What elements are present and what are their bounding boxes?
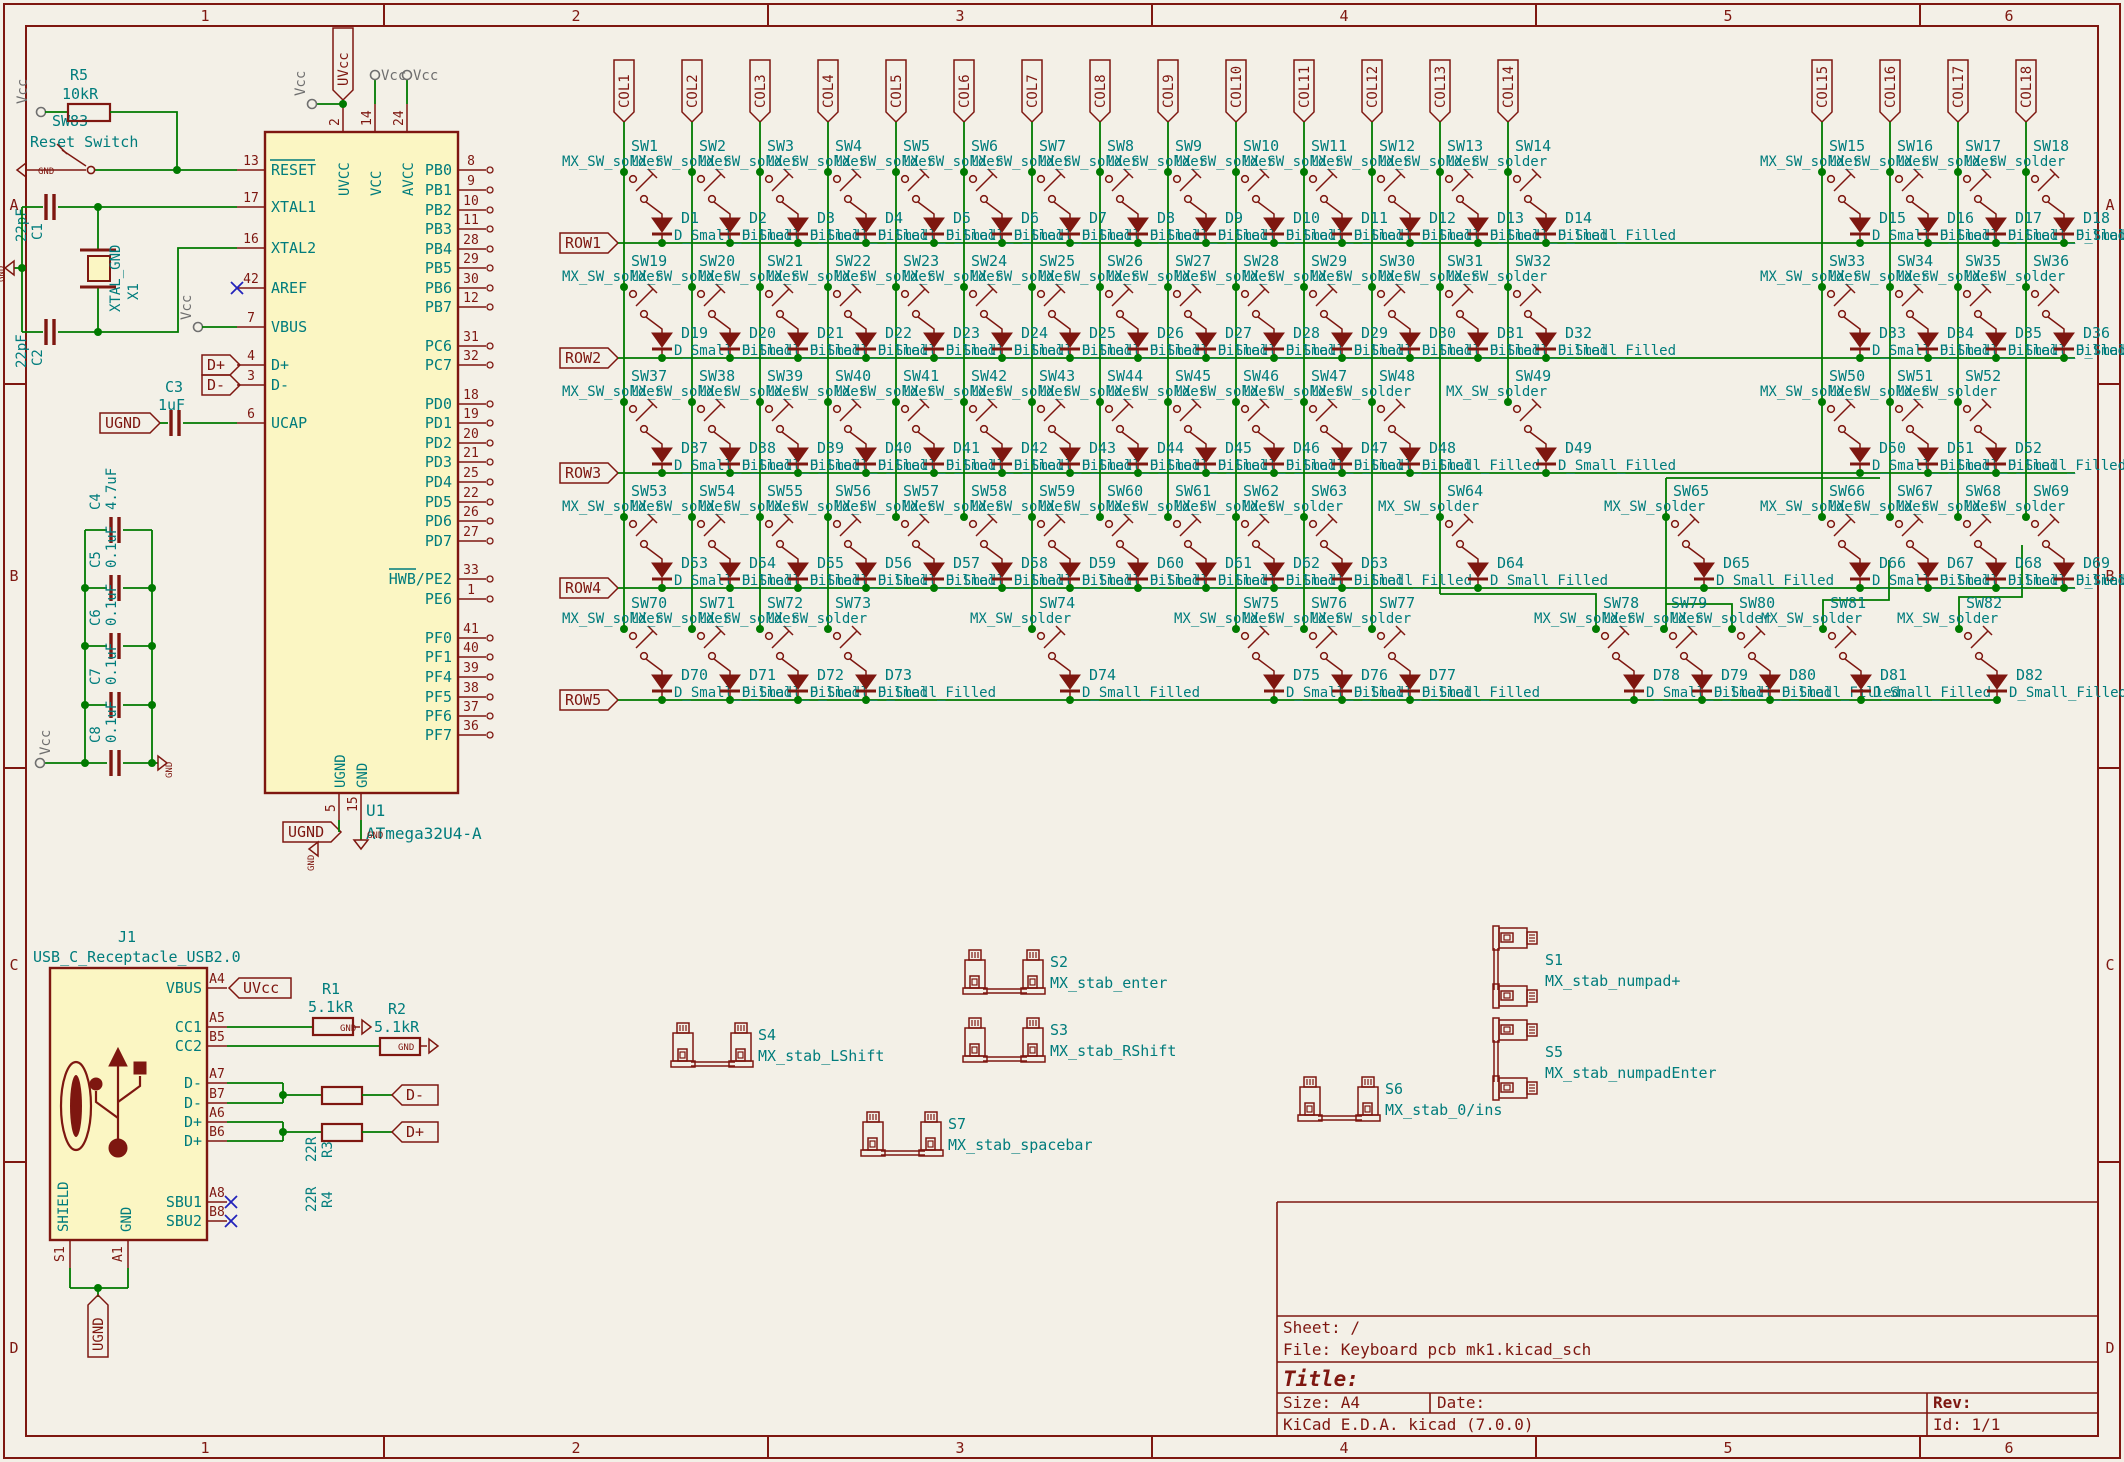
svg-text:5: 5	[324, 804, 339, 812]
svg-text:D67: D67	[1947, 554, 1974, 572]
svg-text:SW27: SW27	[1175, 252, 1211, 270]
svg-text:SW56: SW56	[835, 482, 871, 500]
svg-text:SW61: SW61	[1175, 482, 1211, 500]
svg-text:SW75: SW75	[1243, 594, 1279, 612]
svg-text:10: 10	[463, 194, 479, 209]
svg-text:SW71: SW71	[699, 594, 735, 612]
svg-text:PD2: PD2	[425, 434, 452, 452]
svg-text:S1: S1	[53, 1246, 68, 1262]
crystal-circuit[interactable]: 22pFC122pFC2XTAL_GNDX1GNDVcc	[0, 194, 237, 368]
svg-text:ATmega32U4-A: ATmega32U4-A	[366, 824, 482, 843]
svg-text:D44: D44	[1157, 439, 1184, 457]
svg-text:PC6: PC6	[425, 337, 452, 355]
svg-text:PB4: PB4	[425, 240, 452, 258]
svg-text:ROW2: ROW2	[565, 349, 601, 367]
svg-text:D14: D14	[1565, 209, 1592, 227]
svg-text:D60: D60	[1157, 554, 1184, 572]
svg-text:SW52: SW52	[1965, 367, 2001, 385]
mcu-u1[interactable]: U1ATmega32U4-A13RESET17XTAL116XTAL242ARE…	[202, 28, 493, 871]
svg-text:MX_SW_solder: MX_SW_solder	[1604, 499, 1705, 515]
svg-text:D-: D-	[184, 1074, 202, 1092]
svg-text:B8: B8	[209, 1205, 225, 1220]
svg-text:D9: D9	[1225, 209, 1243, 227]
svg-text:A6: A6	[209, 1106, 225, 1121]
svg-text:UGND: UGND	[91, 1317, 107, 1351]
titleblock-title: Title:	[1283, 1367, 1359, 1391]
svg-text:COL8: COL8	[1093, 74, 1109, 108]
svg-text:UGND: UGND	[333, 754, 349, 788]
svg-text:D59: D59	[1089, 554, 1116, 572]
svg-text:D34: D34	[1947, 324, 1974, 342]
svg-text:D74: D74	[1089, 666, 1116, 684]
svg-text:RESET: RESET	[271, 161, 316, 179]
titleblock-generator: KiCad E.D.A. kicad (7.0.0)	[1283, 1415, 1533, 1434]
matrix-row-ROW5[interactable]: ROW5SW70MX_SW_solderD70D_Small_FilledSW7…	[560, 594, 2124, 710]
svg-text:PF6: PF6	[425, 707, 452, 725]
svg-text:SBU1: SBU1	[166, 1193, 202, 1211]
svg-text:12: 12	[463, 291, 479, 306]
svg-text:PF5: PF5	[425, 688, 452, 706]
svg-text:D25: D25	[1089, 324, 1116, 342]
svg-text:B6: B6	[209, 1125, 225, 1140]
svg-text:D20: D20	[749, 324, 776, 342]
svg-text:COL13: COL13	[1433, 66, 1449, 108]
svg-text:COL9: COL9	[1161, 74, 1177, 108]
stabilizer-S6[interactable]: S6MX_stab_0/ins	[1298, 1077, 1502, 1121]
svg-text:SW5: SW5	[903, 137, 930, 155]
reset-circuit[interactable]: R510kRSW83Reset SwitchVccGND	[15, 66, 237, 177]
svg-text:SW25: SW25	[1039, 252, 1075, 270]
svg-text:PD6: PD6	[425, 512, 452, 530]
svg-text:SW18: SW18	[2033, 137, 2069, 155]
svg-text:D5: D5	[953, 209, 971, 227]
titleblock-file: File: Keyboard pcb mk1.kicad_sch	[1283, 1340, 1591, 1359]
svg-text:D18: D18	[2083, 209, 2110, 227]
svg-text:D12: D12	[1429, 209, 1456, 227]
svg-text:SW10: SW10	[1243, 137, 1279, 155]
svg-text:SW21: SW21	[767, 252, 803, 270]
svg-text:9: 9	[467, 174, 475, 189]
svg-text:SW59: SW59	[1039, 482, 1075, 500]
svg-text:USB_C_Receptacle_USB2.0: USB_C_Receptacle_USB2.0	[33, 948, 241, 966]
svg-text:GND: GND	[398, 1043, 414, 1053]
svg-text:D_Small_Filled: D_Small_Filled	[2009, 685, 2124, 701]
svg-text:SW72: SW72	[767, 594, 803, 612]
svg-text:SW45: SW45	[1175, 367, 1211, 385]
svg-text:SW12: SW12	[1379, 137, 1415, 155]
svg-text:SW3: SW3	[767, 137, 794, 155]
stabilizer-S2[interactable]: S2MX_stab_enter	[963, 950, 1167, 994]
svg-text:D_Small_Filled: D_Small_Filled	[1490, 573, 1608, 589]
svg-text:26: 26	[463, 505, 479, 520]
svg-text:COL7: COL7	[1025, 74, 1041, 108]
svg-text:0.1uF: 0.1uF	[104, 701, 120, 743]
svg-text:SW31: SW31	[1447, 252, 1483, 270]
svg-text:C5: C5	[88, 551, 104, 568]
svg-text:PD3: PD3	[425, 453, 452, 471]
svg-text:D_Small_Filled: D_Small_Filled	[2076, 343, 2124, 359]
svg-text:Vcc: Vcc	[38, 730, 54, 755]
svg-text:SW65: SW65	[1673, 482, 1709, 500]
border-col-number: 1	[200, 7, 209, 25]
svg-text:D65: D65	[1723, 554, 1750, 572]
svg-text:MX_SW_solder: MX_SW_solder	[1896, 384, 1997, 400]
keyboard-matrix[interactable]: COL1COL2COL3COL4COL5COL6COL7COL8COL9COL1…	[560, 60, 2124, 710]
svg-text:D69: D69	[2083, 554, 2110, 572]
svg-text:COL16: COL16	[1883, 66, 1899, 108]
svg-text:A4: A4	[209, 972, 225, 987]
svg-text:UGND: UGND	[105, 414, 141, 432]
svg-text:11: 11	[463, 213, 479, 228]
svg-text:PD7: PD7	[425, 532, 452, 550]
svg-text:SW54: SW54	[699, 482, 735, 500]
svg-text:MX_SW_solder: MX_SW_solder	[1897, 611, 1998, 627]
switch-cell-SW74[interactable]: SW74MX_SW_solderD74D_Small_Filled	[970, 594, 1200, 704]
svg-text:SW67: SW67	[1897, 482, 1933, 500]
svg-text:SW20: SW20	[699, 252, 735, 270]
svg-text:COL11: COL11	[1297, 66, 1313, 108]
svg-text:GND: GND	[165, 762, 175, 778]
stabilizer-S5[interactable]: S5MX_stab_numpadEnter	[1493, 1018, 1717, 1100]
svg-text:A1: A1	[111, 1246, 126, 1262]
svg-text:SW29: SW29	[1311, 252, 1347, 270]
svg-text:D55: D55	[817, 554, 844, 572]
svg-text:SW53: SW53	[631, 482, 667, 500]
border-col-number: 4	[1339, 1439, 1348, 1457]
svg-text:D_Small_Filled: D_Small_Filled	[1716, 573, 1834, 589]
svg-text:SW47: SW47	[1311, 367, 1347, 385]
svg-text:D29: D29	[1361, 324, 1388, 342]
svg-text:36: 36	[463, 719, 479, 734]
svg-text:SW40: SW40	[835, 367, 871, 385]
svg-text:HWB/PE2: HWB/PE2	[389, 570, 452, 588]
svg-text:SW60: SW60	[1107, 482, 1143, 500]
svg-text:SW1: SW1	[631, 137, 658, 155]
svg-text:COL17: COL17	[1951, 66, 1967, 108]
titleblock-id: Id: 1/1	[1933, 1415, 2000, 1434]
border-row-letter: B	[9, 567, 18, 585]
svg-text:GND: GND	[340, 1024, 356, 1034]
svg-text:GND: GND	[38, 167, 54, 177]
svg-text:R1: R1	[322, 980, 340, 998]
svg-text:MX_stab_numpadEnter: MX_stab_numpadEnter	[1545, 1064, 1717, 1082]
svg-text:MX_SW_solder: MX_SW_solder	[1964, 499, 2065, 515]
titleblock-rev: Rev:	[1933, 1393, 1972, 1412]
schematic-canvas[interactable]: 1 2 3 4 5 6 1 2 3 4 5 6 A B C D A B C D	[0, 0, 2124, 1462]
svg-text:SW81: SW81	[1830, 594, 1866, 612]
svg-text:D15: D15	[1879, 209, 1906, 227]
svg-text:22: 22	[463, 486, 479, 501]
svg-text:5.1kR: 5.1kR	[374, 1018, 420, 1036]
border-row-letter: C	[2105, 956, 2114, 974]
svg-text:COL14: COL14	[1501, 66, 1517, 108]
svg-text:D54: D54	[749, 554, 776, 572]
svg-text:ROW5: ROW5	[565, 691, 601, 709]
svg-text:SW15: SW15	[1829, 137, 1865, 155]
svg-text:D6: D6	[1021, 209, 1039, 227]
svg-text:SW46: SW46	[1243, 367, 1279, 385]
svg-text:A7: A7	[209, 1067, 225, 1082]
border-row-letter: C	[9, 956, 18, 974]
svg-text:COL18: COL18	[2019, 66, 2035, 108]
border-col-number: 4	[1339, 7, 1348, 25]
svg-text:D82: D82	[2016, 666, 2043, 684]
svg-text:D+: D+	[406, 1123, 424, 1141]
svg-text:C3: C3	[165, 378, 183, 396]
svg-text:Vcc: Vcc	[179, 295, 195, 320]
border-col-number: 1	[200, 1439, 209, 1457]
svg-text:1: 1	[467, 583, 475, 598]
svg-text:SW44: SW44	[1107, 367, 1143, 385]
svg-text:MX_SW_solder: MX_SW_solder	[1446, 154, 1547, 170]
svg-text:SW28: SW28	[1243, 252, 1279, 270]
svg-text:D16: D16	[1947, 209, 1974, 227]
svg-text:D+: D+	[207, 356, 225, 374]
svg-text:17: 17	[243, 191, 259, 206]
svg-text:SW50: SW50	[1829, 367, 1865, 385]
svg-text:D30: D30	[1429, 324, 1456, 342]
svg-text:J1: J1	[118, 928, 136, 946]
svg-text:D+: D+	[184, 1113, 202, 1131]
svg-text:D76: D76	[1361, 666, 1388, 684]
svg-text:24: 24	[392, 110, 407, 126]
svg-text:SW77: SW77	[1379, 594, 1415, 612]
svg-text:0.1uF: 0.1uF	[104, 526, 120, 568]
svg-text:6: 6	[247, 407, 255, 422]
svg-text:GND: GND	[355, 763, 371, 788]
svg-text:XTAL2: XTAL2	[271, 239, 316, 257]
svg-text:XTAL1: XTAL1	[271, 198, 316, 216]
stabilizer-S7[interactable]: S7MX_stab_spacebar	[861, 1112, 1093, 1156]
border-col-number: 5	[1723, 1439, 1732, 1457]
svg-text:A5: A5	[209, 1011, 225, 1026]
svg-text:VCC: VCC	[369, 171, 385, 196]
svg-text:R2: R2	[388, 1000, 406, 1018]
svg-text:20: 20	[463, 427, 479, 442]
svg-text:PD4: PD4	[425, 473, 452, 491]
svg-text:30: 30	[463, 272, 479, 287]
svg-text:SW16: SW16	[1897, 137, 1933, 155]
svg-text:D45: D45	[1225, 439, 1252, 457]
titleblock-size: Size: A4	[1283, 1393, 1360, 1412]
svg-text:S6: S6	[1385, 1080, 1403, 1098]
svg-text:PB5: PB5	[425, 259, 452, 277]
decoupling-cap-bank[interactable]: C44.7uFC50.1uFC60.1uFC70.1uFC80.1uFVccGN…	[36, 468, 176, 778]
svg-text:D_Small_Filled: D_Small_Filled	[1558, 458, 1676, 474]
matrix-row-ROW4[interactable]: ROW4SW53MX_SW_solderD53D_Small_FilledSW5…	[560, 482, 2124, 598]
svg-text:GND: GND	[0, 266, 7, 282]
svg-text:D51: D51	[1947, 439, 1974, 457]
title-block: Sheet: / File: Keyboard pcb mk1.kicad_sc…	[1277, 1202, 2098, 1436]
svg-text:D3: D3	[817, 209, 835, 227]
svg-text:Vcc: Vcc	[293, 71, 309, 96]
svg-text:MX_SW_solder: MX_SW_solder	[1964, 154, 2065, 170]
svg-text:41: 41	[463, 622, 479, 637]
svg-text:14: 14	[360, 110, 375, 126]
svg-text:SW48: SW48	[1379, 367, 1415, 385]
svg-text:D43: D43	[1089, 439, 1116, 457]
svg-text:D27: D27	[1225, 324, 1252, 342]
svg-text:16: 16	[243, 232, 259, 247]
svg-text:32: 32	[463, 349, 479, 364]
svg-text:VBUS: VBUS	[166, 979, 202, 997]
svg-text:SW63: SW63	[1311, 482, 1347, 500]
svg-text:15: 15	[346, 796, 361, 812]
svg-text:D49: D49	[1565, 439, 1592, 457]
svg-text:D38: D38	[749, 439, 776, 457]
svg-text:SW55: SW55	[767, 482, 803, 500]
svg-text:D39: D39	[817, 439, 844, 457]
svg-text:XTAL_GND: XTAL_GND	[108, 245, 124, 312]
svg-text:C7: C7	[88, 668, 104, 685]
svg-text:28: 28	[463, 233, 479, 248]
svg-text:VBUS: VBUS	[271, 318, 307, 336]
svg-text:D_Small_Filled: D_Small_Filled	[2076, 228, 2124, 244]
svg-text:D78: D78	[1653, 666, 1680, 684]
svg-text:SW42: SW42	[971, 367, 1007, 385]
svg-text:SW11: SW11	[1311, 137, 1347, 155]
svg-text:A8: A8	[209, 1186, 225, 1201]
svg-text:D22: D22	[885, 324, 912, 342]
svg-text:D24: D24	[1021, 324, 1048, 342]
svg-text:27: 27	[463, 525, 479, 540]
svg-text:S7: S7	[948, 1115, 966, 1133]
svg-text:PB2: PB2	[425, 201, 452, 219]
svg-text:UGND: UGND	[288, 823, 324, 841]
svg-text:COL4: COL4	[821, 74, 837, 108]
svg-text:AVCC: AVCC	[401, 162, 417, 196]
svg-text:SW36: SW36	[2033, 252, 2069, 270]
svg-text:4.7uF: 4.7uF	[104, 468, 120, 510]
svg-text:D52: D52	[2015, 439, 2042, 457]
svg-text:S5: S5	[1545, 1043, 1563, 1061]
svg-text:D-: D-	[406, 1086, 424, 1104]
svg-text:UVcc: UVcc	[243, 979, 279, 997]
svg-text:C2: C2	[30, 349, 46, 366]
svg-text:SW2: SW2	[699, 137, 726, 155]
stabilizer-S4[interactable]: S4MX_stab_LShift	[671, 1023, 884, 1067]
svg-text:UVcc: UVcc	[336, 52, 352, 86]
border-col-number: 3	[955, 1439, 964, 1457]
svg-text:R5: R5	[70, 66, 88, 84]
svg-text:D_Small_Filled: D_Small_Filled	[1082, 685, 1200, 701]
kicad-schematic-sheet: 1 2 3 4 5 6 1 2 3 4 5 6 A B C D A B C D	[0, 0, 2124, 1462]
usb-c-connector[interactable]: J1USB_C_Receptacle_USB2.0SHIELDGNDA4VBUS…	[33, 928, 438, 1357]
svg-text:PF4: PF4	[425, 668, 452, 686]
svg-text:SW30: SW30	[1379, 252, 1415, 270]
svg-text:MX_SW_solder: MX_SW_solder	[766, 611, 867, 627]
border-col-number: 2	[571, 7, 580, 25]
svg-text:MX_stab_numpad+: MX_stab_numpad+	[1545, 972, 1680, 990]
svg-text:U1: U1	[366, 801, 385, 820]
svg-text:PF0: PF0	[425, 629, 452, 647]
svg-text:MX_SW_solder: MX_SW_solder	[1378, 499, 1479, 515]
svg-text:D_Small_Filled: D_Small_Filled	[1422, 458, 1540, 474]
svg-text:D13: D13	[1497, 209, 1524, 227]
svg-text:SW7: SW7	[1039, 137, 1066, 155]
svg-text:MX_SW_solder: MX_SW_solder	[1310, 384, 1411, 400]
svg-text:D11: D11	[1361, 209, 1388, 227]
svg-text:MX_SW_solder: MX_SW_solder	[1446, 269, 1547, 285]
svg-text:COL12: COL12	[1365, 66, 1381, 108]
svg-text:D_Small_Filled: D_Small_Filled	[2076, 573, 2124, 589]
svg-text:SW24: SW24	[971, 252, 1007, 270]
border-col-number: 3	[955, 7, 964, 25]
svg-text:UVCC: UVCC	[337, 162, 353, 196]
svg-text:D80: D80	[1789, 666, 1816, 684]
svg-text:D41: D41	[953, 439, 980, 457]
svg-text:SW23: SW23	[903, 252, 939, 270]
svg-text:21: 21	[463, 446, 479, 461]
svg-text:5.1kR: 5.1kR	[308, 998, 354, 1016]
svg-text:GND: GND	[119, 1207, 135, 1232]
svg-text:13: 13	[243, 154, 259, 169]
svg-text:CC1: CC1	[175, 1018, 202, 1036]
svg-text:D68: D68	[2015, 554, 2042, 572]
svg-text:39: 39	[463, 661, 479, 676]
svg-text:D31: D31	[1497, 324, 1524, 342]
svg-text:22pF: 22pF	[14, 334, 30, 368]
svg-text:SW78: SW78	[1603, 594, 1639, 612]
svg-text:D_Small_Filled: D_Small_Filled	[1873, 685, 1991, 701]
svg-text:D77: D77	[1429, 666, 1456, 684]
svg-text:18: 18	[463, 388, 479, 403]
svg-text:10kR: 10kR	[62, 85, 99, 103]
svg-text:PB6: PB6	[425, 279, 452, 297]
svg-text:S4: S4	[758, 1026, 776, 1044]
svg-text:MX_stab_RShift: MX_stab_RShift	[1050, 1042, 1176, 1060]
svg-text:GND: GND	[367, 831, 383, 841]
svg-text:0.1uF: 0.1uF	[104, 584, 120, 626]
svg-text:SW66: SW66	[1829, 482, 1865, 500]
svg-text:C4: C4	[88, 493, 104, 510]
border-col-number: 2	[571, 1439, 580, 1457]
svg-text:COL5: COL5	[889, 74, 905, 108]
svg-text:COL6: COL6	[957, 74, 973, 108]
border-row-letter: D	[2105, 1339, 2114, 1357]
svg-text:D8: D8	[1157, 209, 1175, 227]
svg-text:SW80: SW80	[1739, 594, 1775, 612]
svg-text:3: 3	[247, 369, 255, 384]
svg-text:SW37: SW37	[631, 367, 667, 385]
svg-text:SW33: SW33	[1829, 252, 1865, 270]
svg-text:SW64: SW64	[1447, 482, 1483, 500]
svg-text:SBU2: SBU2	[166, 1212, 202, 1230]
svg-text:D48: D48	[1429, 439, 1456, 457]
svg-text:MX_SW_solder: MX_SW_solder	[1964, 269, 2065, 285]
svg-text:D_Small_Filled: D_Small_Filled	[1558, 228, 1676, 244]
svg-text:SW35: SW35	[1965, 252, 2001, 270]
stabilizer-S3[interactable]: S3MX_stab_RShift	[963, 1018, 1176, 1062]
svg-text:SW58: SW58	[971, 482, 1007, 500]
svg-text:SW79: SW79	[1671, 594, 1707, 612]
svg-text:SW14: SW14	[1515, 137, 1551, 155]
svg-text:SW17: SW17	[1965, 137, 2001, 155]
svg-text:C6: C6	[88, 609, 104, 626]
svg-text:R4: R4	[320, 1191, 336, 1208]
svg-text:X1: X1	[126, 283, 142, 300]
svg-text:SW9: SW9	[1175, 137, 1202, 155]
svg-text:D32: D32	[1565, 324, 1592, 342]
svg-text:S2: S2	[1050, 953, 1068, 971]
svg-text:GND: GND	[307, 855, 317, 871]
svg-text:PF1: PF1	[425, 648, 452, 666]
stabilizer-S1[interactable]: S1MX_stab_numpad+	[1493, 926, 1680, 1008]
border-col-number: 5	[1723, 7, 1732, 25]
svg-text:29: 29	[463, 252, 479, 267]
svg-text:SHIELD: SHIELD	[56, 1181, 72, 1232]
svg-text:D62: D62	[1293, 554, 1320, 572]
